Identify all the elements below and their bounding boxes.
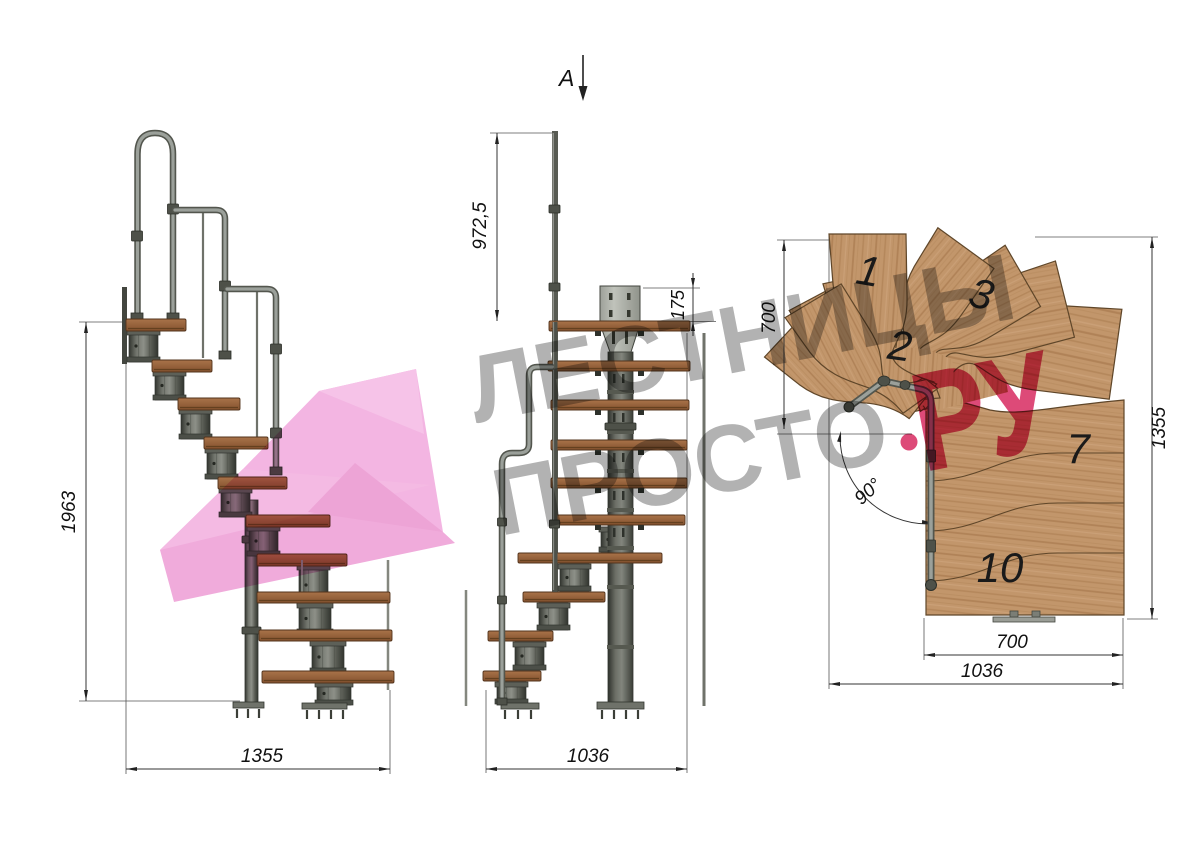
svg-text:1036: 1036 bbox=[961, 661, 1004, 682]
svg-text:10: 10 bbox=[977, 544, 1024, 591]
svg-text:1036: 1036 bbox=[567, 746, 610, 767]
svg-text:1355: 1355 bbox=[1149, 406, 1170, 449]
svg-text:1355: 1355 bbox=[241, 746, 284, 767]
svg-text:A: A bbox=[557, 65, 574, 91]
svg-text:7: 7 bbox=[1066, 425, 1091, 472]
svg-text:1963: 1963 bbox=[59, 490, 80, 533]
svg-text:700: 700 bbox=[996, 632, 1028, 653]
svg-text:972,5: 972,5 bbox=[470, 202, 491, 250]
